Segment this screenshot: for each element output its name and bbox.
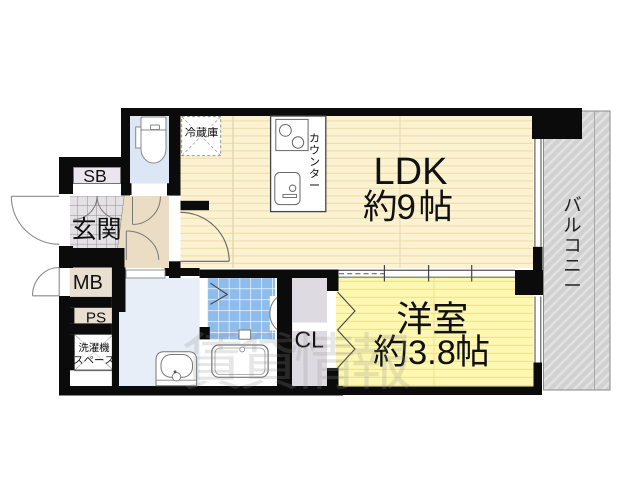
svg-text:SB: SB	[83, 166, 106, 186]
svg-text:9: 9	[397, 188, 416, 227]
svg-text:MB: MB	[73, 272, 103, 294]
svg-text:3.8: 3.8	[408, 334, 456, 372]
